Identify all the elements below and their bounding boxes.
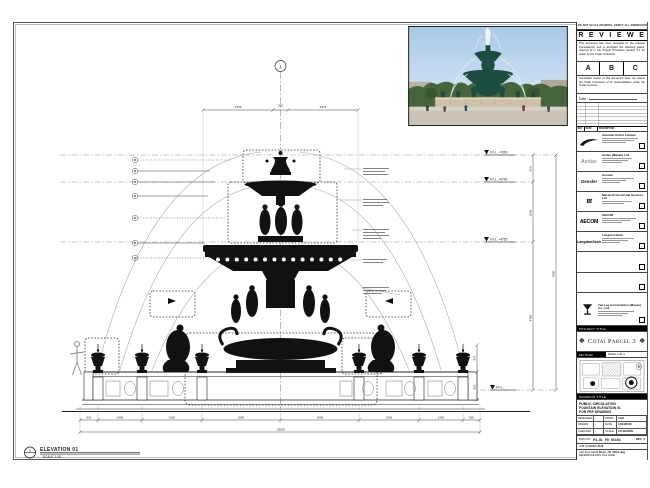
drawing-title: PUBLIC CIRCULATION FOUNTAIN ELEVATION 01… xyxy=(577,400,647,416)
consultant-checkbox xyxy=(639,223,645,229)
drawing-title-line-3: FOR FRP DRAWING xyxy=(579,410,645,414)
scale-figure xyxy=(70,341,84,375)
consultant-checkbox xyxy=(639,143,645,149)
grid-bubble: 1 xyxy=(275,61,286,72)
keynote-text-blocks xyxy=(340,168,400,295)
svg-text:SCALE 1:25: SCALE 1:25 xyxy=(43,455,61,459)
rev-label: REV xyxy=(636,438,642,441)
consultant-name: Venetian Orient Limited xyxy=(602,134,646,137)
banner-ornament-left: ❖ xyxy=(579,338,585,345)
svg-text:1400: 1400 xyxy=(117,416,124,420)
consultant-checkbox xyxy=(639,203,645,209)
reviewed-stamp-title: R E V I E W E D xyxy=(577,30,647,41)
bottom-dimensions: 600 1400 1900 2600 2600 1900 1400 600 13… xyxy=(78,406,482,434)
right-vertical-dimensions: 810 2040 4750 7600 xyxy=(529,153,558,392)
svg-text:1: 1 xyxy=(29,448,32,453)
consultant-box-engineer: AECOM AECOM xyxy=(577,212,647,232)
key-plan-note: PANEL 1 OF 4 xyxy=(605,352,647,357)
svg-text:250: 250 xyxy=(278,104,283,108)
title-block-fields: DESIGNED - DRWN CAD DRAWN - DATE 12/04/2… xyxy=(577,416,647,436)
langdon-seah-logo: LangdonSeah xyxy=(577,232,601,251)
key-plan-label: KEY PLAN xyxy=(577,352,605,357)
job-value: 3123 xyxy=(597,445,603,448)
fountain-silhouette xyxy=(168,151,393,373)
svg-text:2375: 2375 xyxy=(320,105,327,109)
elevation-label: 1 ELEVATION 01 SCALE 1:25 xyxy=(25,447,141,459)
status-box-a: A xyxy=(577,62,600,75)
gensler-logo: Gensler xyxy=(577,172,601,191)
consultant-box-empty-2 xyxy=(577,273,647,293)
svg-text:900: 900 xyxy=(473,384,477,389)
svg-text:2600: 2600 xyxy=(238,416,245,420)
svg-text:F.F.L.: F.F.L. xyxy=(496,386,504,390)
svg-text:600: 600 xyxy=(469,416,474,420)
svg-text:2600: 2600 xyxy=(317,416,324,420)
consultant-box-design-architect: Gensler Gensler xyxy=(577,172,647,192)
consultant-name: Macau Professional Services Ltd. xyxy=(602,194,646,201)
svg-text:2375: 2375 xyxy=(235,105,242,109)
title-block: DO NOT SCALE DRAWING. VERIFY ALL DIMENSI… xyxy=(576,22,647,460)
dwg-no-label: DWG NO. xyxy=(579,438,591,441)
svg-text:ELEVATION 01: ELEVATION 01 xyxy=(40,447,78,453)
reference-dwg-label: REFERENCE DWG FILE NAME xyxy=(579,454,645,458)
job-label: JOB NUMBER xyxy=(579,445,597,448)
svg-text:2040: 2040 xyxy=(529,209,533,216)
mps-logo: ttt xyxy=(577,192,601,211)
aecom-logo: AECOM xyxy=(577,212,601,231)
svg-text:4750: 4750 xyxy=(529,314,533,321)
consultant-name: Gensler xyxy=(602,174,646,177)
banner-ornament-right: ❖ xyxy=(639,338,645,345)
svg-text:875: 875 xyxy=(473,355,477,360)
aedas-logo: Aedas xyxy=(577,152,601,171)
consultant-box-architect: Aedas Aedas (Macau) Ltd. xyxy=(577,152,647,172)
review-status-boxes: A B C xyxy=(577,62,647,76)
project-name: Cotai Parcel 3 xyxy=(588,338,636,345)
svg-text:600: 600 xyxy=(87,416,92,420)
svg-text:13000: 13000 xyxy=(276,428,285,432)
consultant-name: AECOM xyxy=(602,214,646,217)
consultant-checkbox xyxy=(639,243,645,249)
svg-text:F.F.L. +6790: F.F.L. +6790 xyxy=(490,178,508,182)
dwg-no-value: P3-GL_FD_05101 xyxy=(593,438,621,442)
svg-text:F.F.L. +7600: F.F.L. +7600 xyxy=(490,151,508,155)
consultant-checkbox xyxy=(639,163,645,169)
fountain-reference-photo xyxy=(406,26,570,126)
svg-text:1900: 1900 xyxy=(386,416,393,420)
consultant-checkbox xyxy=(639,284,645,290)
consultant-box-empty-1 xyxy=(577,252,647,273)
sands-swoosh-logo xyxy=(577,132,601,151)
svg-text:1900: 1900 xyxy=(169,416,176,420)
revision-table-header: REV DATE DESCRIPTION xyxy=(577,126,647,131)
stamp-date-line xyxy=(589,94,637,100)
drawing-sheet: 1 2375 250 2375 xyxy=(0,0,650,488)
consultant-box-client: Venetian Orient Limited xyxy=(577,132,647,152)
contractor-box: Yau Lee Construction (Macau) Co., Ltd. xyxy=(577,293,647,326)
stamp-date-label: Date : xyxy=(579,97,588,101)
key-plan-map xyxy=(577,358,647,394)
consultant-name: Aedas (Macau) Ltd. xyxy=(602,154,646,157)
consultant-checkbox xyxy=(639,264,645,270)
svg-text:1400: 1400 xyxy=(438,416,445,420)
status-box-c: C xyxy=(624,62,647,75)
rev-value: 0 xyxy=(644,438,646,441)
status-box-b: B xyxy=(600,62,623,75)
svg-text:F.F.L. +4750: F.F.L. +4750 xyxy=(490,238,508,242)
consultant-checkbox xyxy=(639,183,645,189)
contractor-checkbox xyxy=(639,317,645,323)
yau-lee-logo xyxy=(577,303,597,316)
contractor-name: Yau Lee Construction (Macau) Co., Ltd. xyxy=(598,304,646,311)
svg-text:7600: 7600 xyxy=(552,270,556,277)
consultant-box-services: ttt Macau Professional Services Ltd. xyxy=(577,192,647,212)
consultant-box-qs: LangdonSeah Langdon Seah xyxy=(577,232,647,252)
svg-text:810: 810 xyxy=(529,166,533,171)
reviewed-stamp-paragraph-1: This document has been reviewed by the r… xyxy=(577,41,647,62)
sheet-general-note: DO NOT SCALE DRAWING. VERIFY ALL DIMENSI… xyxy=(577,22,647,30)
project-name-banner: ❖ Cotai Parcel 3 ❖ xyxy=(577,332,647,352)
revision-table: REV DATE DESCRIPTION xyxy=(577,103,647,132)
svg-text:1: 1 xyxy=(279,64,282,69)
reviewed-stamp-paragraph-2: Consultant review of this document does … xyxy=(577,76,647,94)
pool-balustrade xyxy=(62,372,530,412)
level-markers: F.F.L. +7600 F.F.L. +6790 F.F.L. +4750 F… xyxy=(484,150,516,390)
stamp-date-row: Date : xyxy=(577,94,647,103)
cad-file-rows: CAD FILE NAME P3-GL_FD_05101.dwg REFEREN… xyxy=(577,450,647,460)
drawing-number-row: DWG NO. P3-GL_FD_05101 REV 0 xyxy=(577,436,647,444)
consultant-name: Langdon Seah xyxy=(602,234,646,237)
